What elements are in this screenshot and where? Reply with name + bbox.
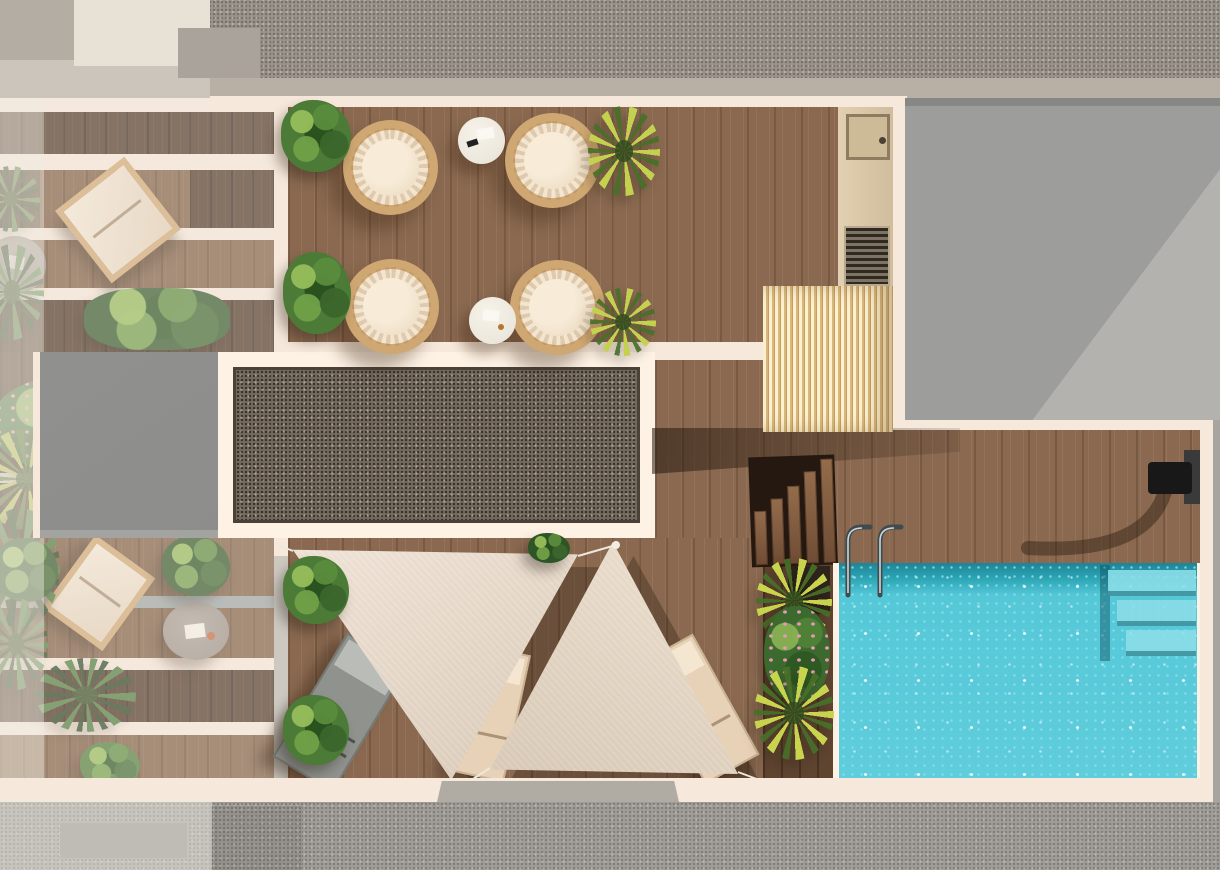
cup <box>207 632 215 640</box>
gravel-skylight <box>233 367 640 523</box>
wicker-chair-2 <box>505 113 600 208</box>
planter-palm-2 <box>754 666 834 760</box>
elevator-block-edge <box>33 352 40 538</box>
outdoor-shower-head <box>1148 462 1192 494</box>
pool-step-1 <box>1108 570 1196 596</box>
roof-edge-shadow <box>905 98 1220 106</box>
coffee-table-1 <box>458 117 505 164</box>
wicker-chair-4 <box>510 260 605 355</box>
ac-equipment-box <box>846 114 890 160</box>
neighbor-roof <box>905 98 1220 422</box>
vent-grate <box>844 226 890 286</box>
pool-ladder <box>838 505 908 600</box>
balcony-plant-2 <box>162 536 230 596</box>
book <box>184 623 206 639</box>
balcony-round-table-bottom <box>163 602 229 660</box>
sun-haze-bottom-left <box>0 800 212 870</box>
tray-card <box>482 309 499 322</box>
roof-sunlit-area <box>905 98 1220 422</box>
neighbor-unit-tab <box>178 28 260 78</box>
deck-bush-small <box>528 533 570 563</box>
pavement-textured-square <box>210 806 302 870</box>
elevator-block-lip <box>40 530 218 538</box>
deck-bush-mid-left <box>283 252 351 334</box>
wicker-chair-1 <box>343 120 438 215</box>
phone <box>466 138 478 147</box>
slatted-pergola <box>763 286 893 432</box>
rooftop-terrace-rendering <box>0 0 1220 870</box>
pool-step-2 <box>1117 600 1196 626</box>
balcony-palm-6 <box>36 658 136 732</box>
equipment-handle <box>879 137 886 144</box>
walkway-inset <box>437 781 679 802</box>
right-parapet <box>1200 420 1213 780</box>
elevator-block <box>40 352 218 538</box>
deck-bush-lower-1 <box>283 556 349 624</box>
sail-rigging <box>270 535 780 800</box>
deck-bush-top-left <box>281 100 351 172</box>
coffee-table-2 <box>469 297 516 344</box>
neighbor-unit-gray <box>0 0 74 60</box>
right-edge-walk <box>1213 420 1220 802</box>
deck-palm-mid-right <box>590 288 656 356</box>
wicker-chair-3 <box>344 259 439 354</box>
cup <box>498 324 504 330</box>
balcony-plant-row <box>84 288 230 350</box>
deck-palm-top-right <box>588 106 660 196</box>
pool-step-3 <box>1126 630 1196 656</box>
tray-card <box>476 127 494 140</box>
deck-bush-lower-2 <box>283 695 349 765</box>
